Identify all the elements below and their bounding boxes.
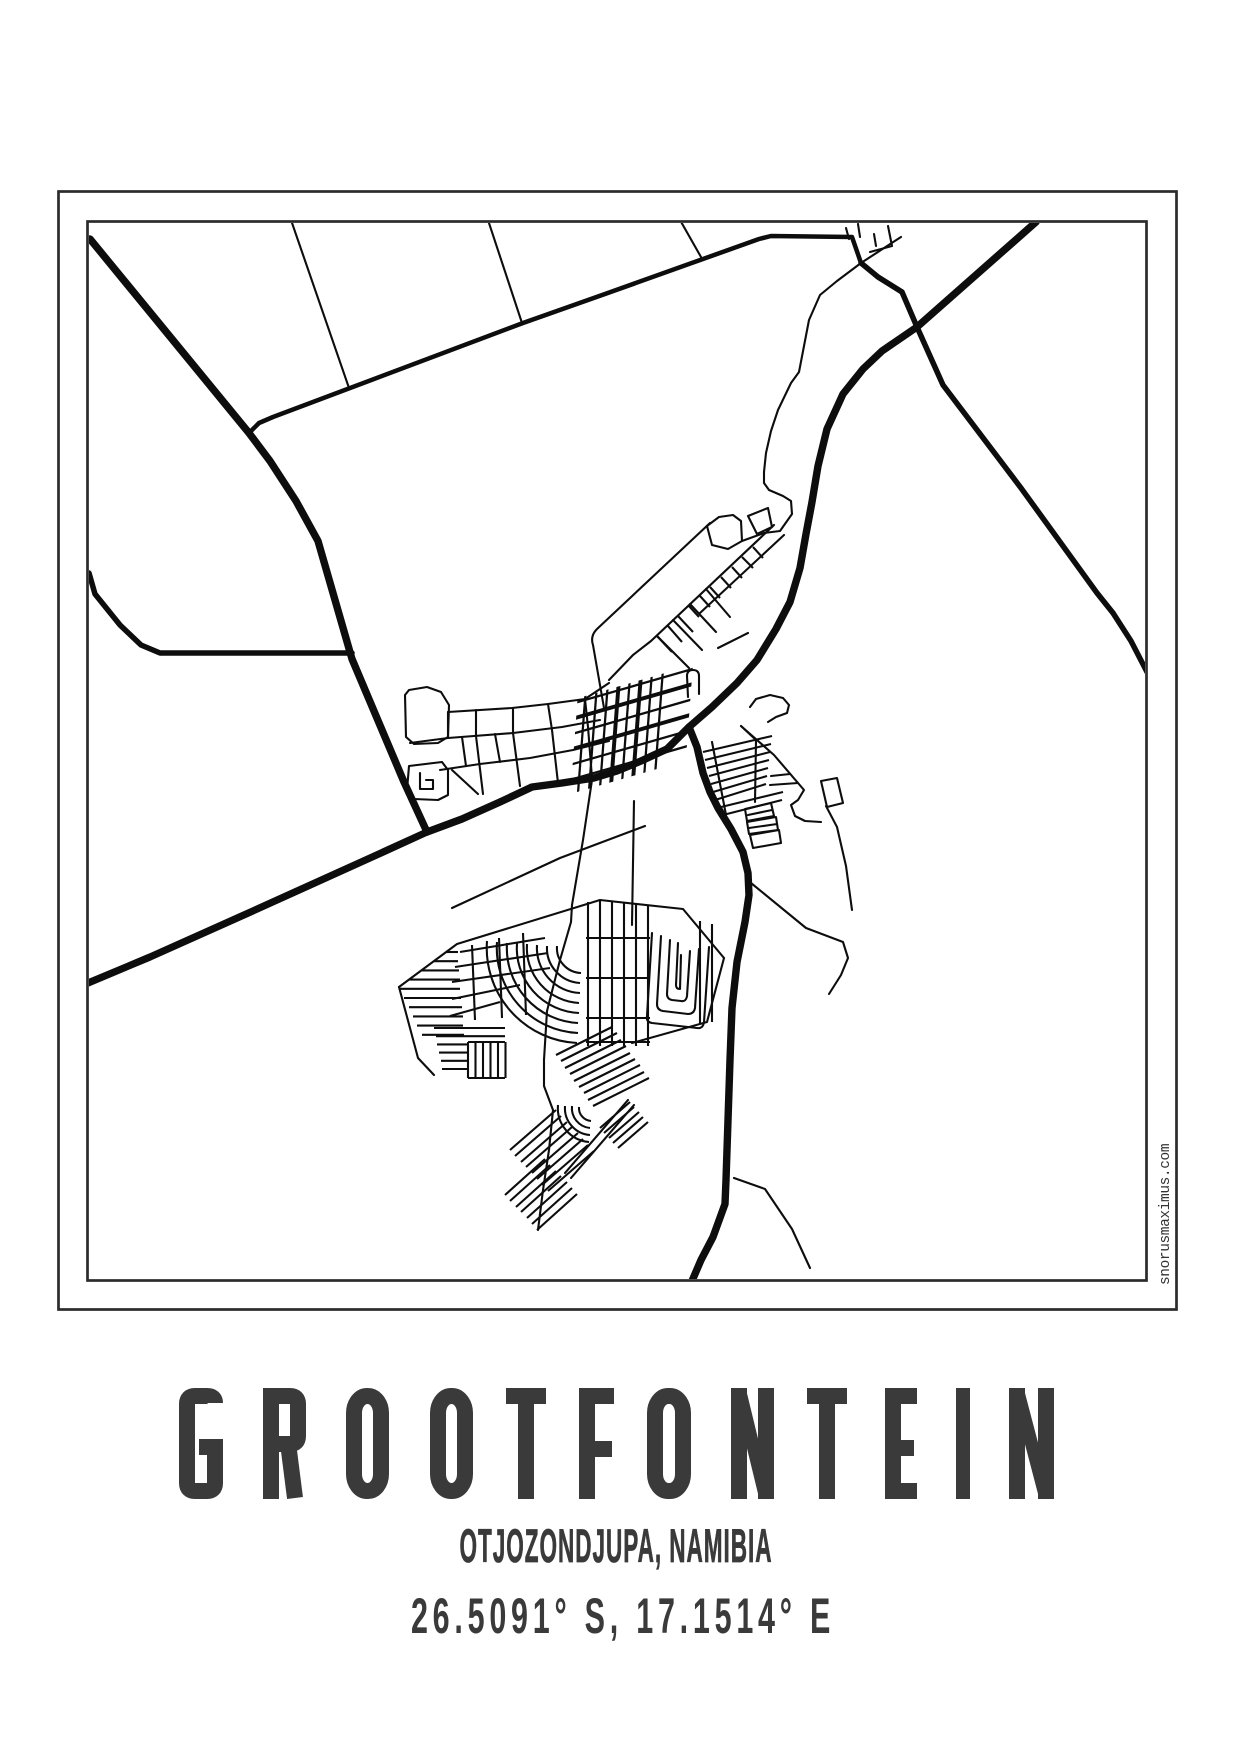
svg-text:OTJOZONDJUPA, NAMIBIA: OTJOZONDJUPA, NAMIBIA (460, 1520, 773, 1572)
svg-text:snorusmaximus.com: snorusmaximus.com (1158, 1144, 1174, 1285)
svg-text:26.5091° S, 17.1514° E: 26.5091° S, 17.1514° E (411, 1588, 835, 1644)
